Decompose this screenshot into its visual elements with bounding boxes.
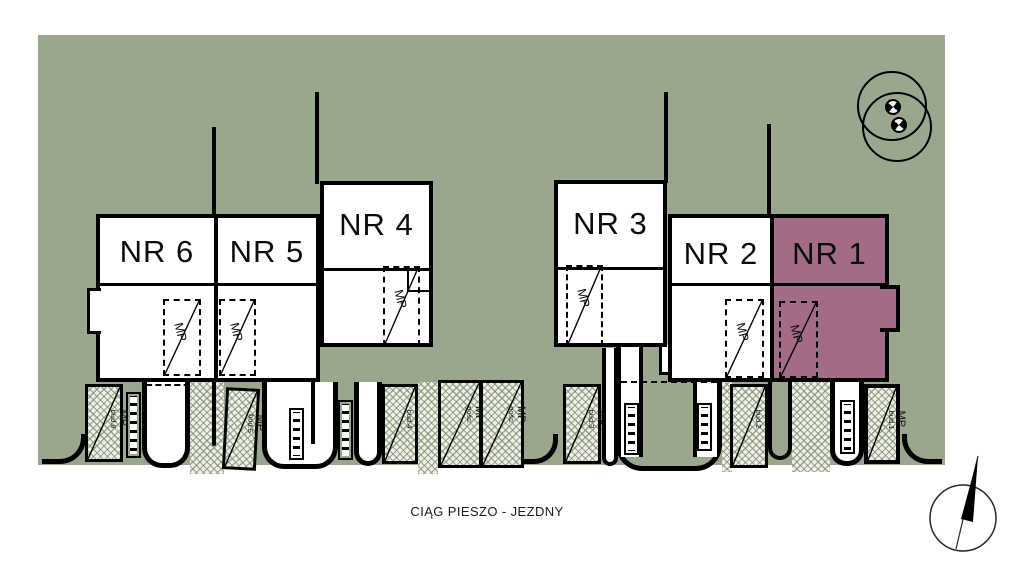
- stairs: [126, 392, 141, 458]
- stairs: [697, 403, 712, 451]
- garage-spot-nr2: MP: [725, 299, 764, 378]
- building-label-nr5: NR 5: [218, 234, 316, 270]
- lot-line-end: [212, 382, 216, 446]
- site-plan: MPbud.6 MPbud.5 MPbud.4 MPgośc. MPgośc. …: [0, 0, 1024, 576]
- tree-trunk-icon: [891, 117, 907, 133]
- building-nr6-nr5: NR 6 NR 5: [96, 214, 320, 382]
- garage-spot-nr3: MP: [566, 265, 603, 346]
- lot-line: [212, 127, 216, 217]
- parking-spot-guest-1: MPgośc.: [438, 380, 482, 468]
- facade-line: [672, 283, 885, 286]
- driveway-hatch: [418, 382, 438, 474]
- entry-walkway: [142, 382, 190, 468]
- building-label-nr3: NR 3: [558, 206, 663, 242]
- driveway-hatch: [792, 382, 830, 472]
- driveway-hatch: [190, 382, 224, 474]
- building-label-nr1: NR 1: [774, 236, 885, 272]
- stairs: [840, 400, 855, 454]
- stairs: [624, 403, 639, 455]
- parking-spot-bud3: MPbud.3: [563, 384, 601, 464]
- stairs: [338, 400, 353, 460]
- garage-spot-nr5: MP: [219, 299, 256, 376]
- entry-walkway: [262, 382, 338, 469]
- parking-spot-guest-2: MPgośc.: [480, 380, 524, 468]
- parking-spot-bud4: MPbud.4: [382, 384, 418, 464]
- building-nr1-bay: [880, 285, 900, 332]
- wall: [311, 382, 315, 444]
- walkway-caption: CIĄG PIESZO - JEZDNY: [367, 504, 607, 519]
- parking-spot-bud2: MPbud.2: [730, 384, 768, 468]
- lot-line: [767, 124, 771, 217]
- parking-spot-bud1: MPbud.1: [864, 384, 900, 464]
- garage-spot-nr4: MP: [383, 266, 420, 346]
- entry-walkway: [354, 382, 382, 466]
- garage-spot-nr6: MP: [163, 299, 201, 376]
- building-label-nr2: NR 2: [672, 236, 770, 272]
- lot-line: [315, 92, 319, 184]
- parking-spot-bud6: MPbud.6: [85, 384, 123, 462]
- facade-line: [100, 283, 316, 286]
- lot-channel: [768, 382, 792, 460]
- building-label-nr6: NR 6: [100, 234, 214, 270]
- building-nr6-bay: [87, 288, 101, 334]
- parking-spot-bud5: MPbud.5: [222, 387, 260, 471]
- building-label-nr4: NR 4: [324, 207, 429, 243]
- lot-line: [664, 92, 668, 183]
- garage-spot-nr1: MP: [779, 301, 818, 378]
- stairs: [289, 408, 304, 460]
- tree-trunk-icon: [885, 99, 901, 115]
- north-arrow-icon: [925, 448, 1009, 560]
